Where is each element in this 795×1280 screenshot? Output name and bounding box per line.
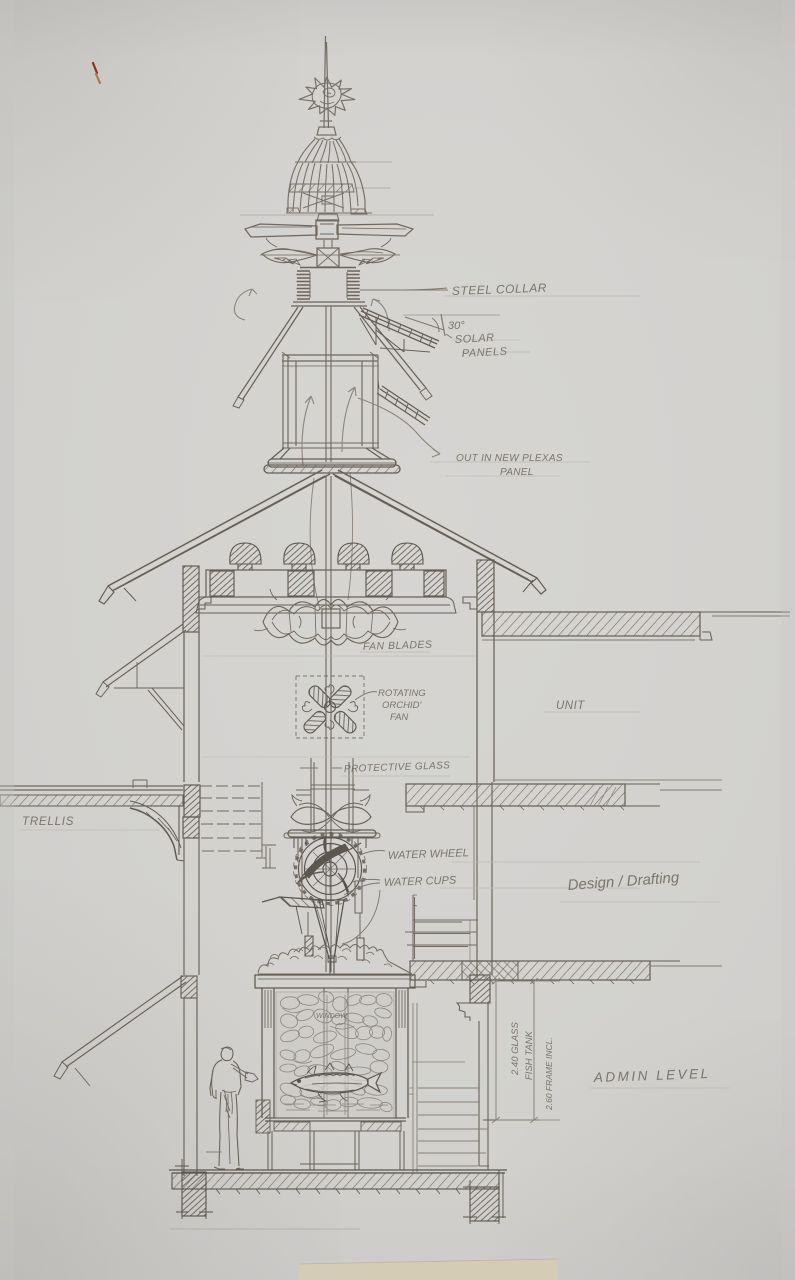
svg-text:WATER CUPS: WATER CUPS (384, 874, 457, 889)
svg-text:2.60 FRAME INCL.: 2.60 FRAME INCL. (544, 1037, 554, 1111)
svg-text:OUT IN NEW PLEXAS: OUT IN NEW PLEXAS (456, 453, 563, 464)
svg-text:ROTATING: ROTATING (378, 688, 426, 699)
svg-text:FISH TANK: FISH TANK (524, 1030, 535, 1080)
svg-text:FAN: FAN (390, 712, 408, 723)
svg-text:PANEL: PANEL (500, 467, 534, 478)
svg-text:TRELLIS: TRELLIS (22, 816, 74, 828)
svg-text:FAN BLADES: FAN BLADES (363, 639, 433, 653)
svg-text:UNIT: UNIT (556, 700, 585, 712)
svg-text:ORCHID': ORCHID' (382, 700, 422, 711)
svg-text:SOLAR: SOLAR (455, 332, 495, 346)
svg-text:PANELS: PANELS (462, 346, 508, 360)
svg-text:WINDOW: WINDOW (316, 1013, 348, 1020)
svg-text:30°: 30° (448, 320, 465, 332)
svg-text:2.40 GLASS: 2.40 GLASS (510, 1022, 521, 1076)
